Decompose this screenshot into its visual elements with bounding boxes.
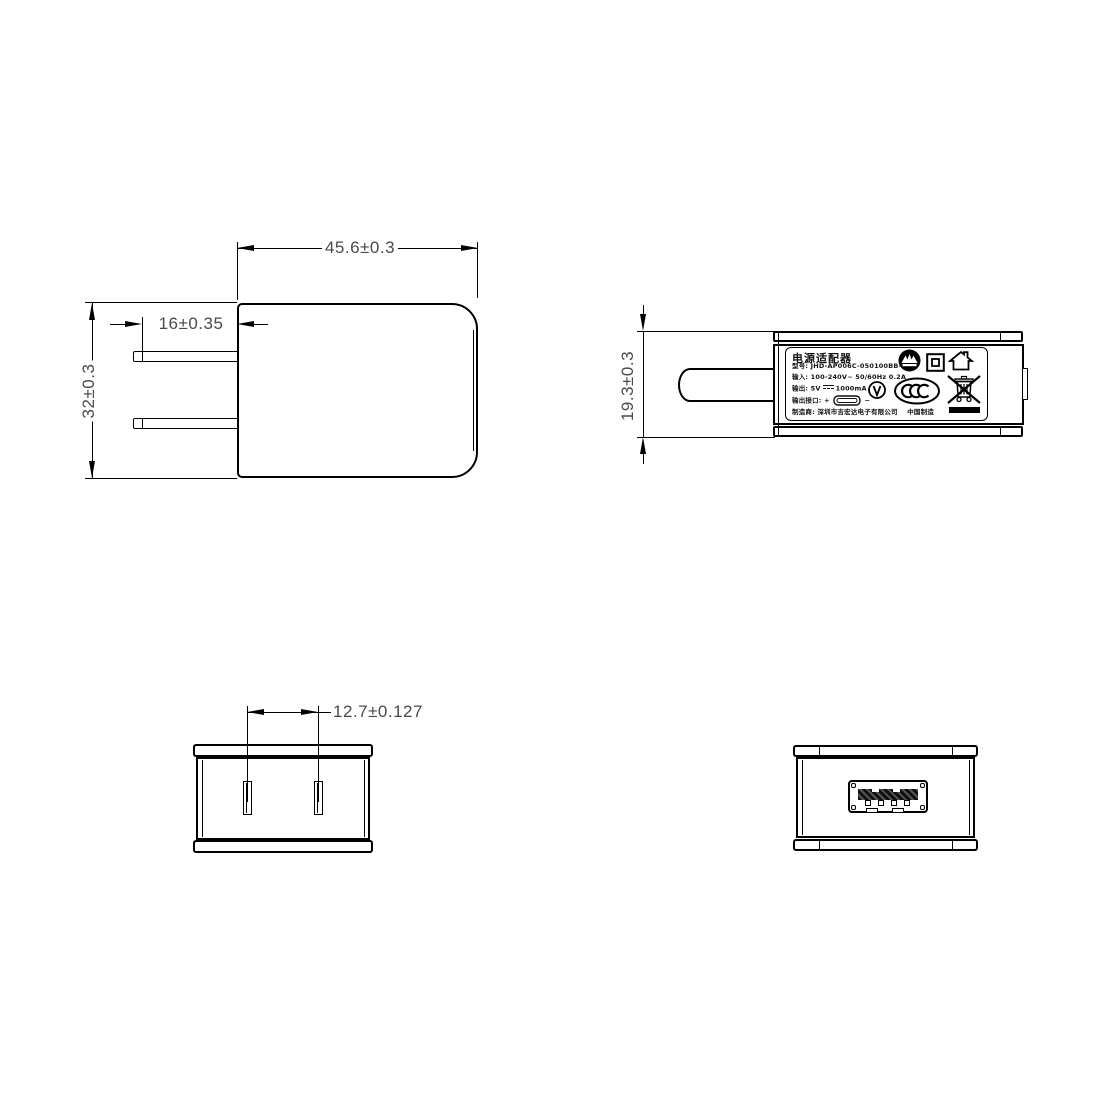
label-manufacturer: 制造商: 深圳市吉宏达电子有限公司 [792,408,898,416]
width-dim-arrow-right [461,245,478,251]
pinlen-arrow-left [125,321,142,327]
efficiency-level-v-icon [868,381,886,399]
usbface-topcap-div-right [952,746,953,756]
usbface-topcap-div-left [819,746,820,756]
pinlen-dim-text: 16±0.35 [156,314,227,334]
spacing-ext-line-right [318,706,319,802]
label-output-prefix: 输出: 5V [792,385,821,393]
width-dim-arrow-left [237,245,254,251]
plug-pin-side [678,368,775,402]
usb-contact-4 [904,800,910,806]
spacing-arrow-right [301,709,318,715]
spacing-arrow-left [247,709,264,715]
thick-tail-bottom [643,454,644,464]
adapter-body-outline [237,303,478,478]
height-ext-line-bottom [85,478,237,479]
height-dim-text: 32±0.3 [79,361,99,422]
usb-contact-1 [865,800,871,806]
thick-ext-line-bottom [637,437,775,438]
usbface-top-cap [793,745,978,757]
usb-connector-icon [833,395,861,406]
thick-arrow-bottom [640,437,646,454]
black-bar-mark [949,407,980,413]
weee-crossed-bin-icon [945,374,983,406]
usb-contact-2 [878,800,884,806]
width-dim-text: 45.6±0.3 [322,238,398,258]
side-bottom-strip [773,426,1023,437]
pin-top-step-line [142,352,143,361]
usb-tongue-notch-left [872,789,879,792]
usbface-botcap-div-left [819,840,820,850]
dc-voltage-icon [823,385,834,392]
ccc-certification-icon [893,377,941,405]
label-port-plus: + [824,397,830,405]
spacing-ext-line-left [247,706,248,802]
usb-bottom-tab-right [892,808,904,813]
pinface-top-cap [193,744,373,757]
pinlen-tail-left [110,324,126,325]
label-manufacturer-line: 制造商: 深圳市吉宏达电子有限公司 中国制造 [792,409,934,416]
usb-corner-mark-bl [851,805,856,810]
usbface-inner-line-left [802,760,803,835]
label-input-line: 输入: 100-240V~ 50/60Hz 0.2A [792,374,906,381]
height-ext-line-top [85,302,237,303]
plug-pin-bottom [133,418,238,429]
usb-corner-mark-br [920,805,925,810]
side-top-strip [773,331,1023,342]
pinface-inner-line-left [202,760,203,837]
thick-dim-line [643,331,644,437]
label-port-line: 输出接口: + − [792,395,870,406]
usb-bottom-tab-left [866,808,878,813]
pinface-main-body [196,757,370,840]
usb-tongue [858,789,918,800]
side-right-notch [1022,368,1028,400]
plug-pin-top [133,351,238,362]
indoor-use-only-icon [948,349,974,373]
width-ext-line-right [477,242,478,298]
usb-tongue-notch-right [893,789,900,792]
cqc-scalloped-mark-icon [898,349,921,372]
body-parting-line [473,330,474,451]
label-output-suffix: 1000mA [836,385,867,393]
spacing-dim-text: 12.7±0.127 [333,702,423,722]
height-dim-arrow-top [89,303,95,320]
side-left-face-line [778,331,779,437]
product-label: 电源适配器 型号: JHD-AP006C-050100BB-2 输入: 100-… [785,347,988,421]
pinlen-ext-line [142,317,143,351]
thick-arrow-top [640,314,646,331]
pinlen-tail-right [254,324,268,325]
pin-bottom-step-line [142,419,143,428]
thick-ext-line-top [637,331,775,332]
pinlen-arrow-right [237,321,254,327]
label-output-line: 输出: 5V1000mA [792,385,867,393]
usb-corner-mark-tr [920,783,925,788]
usbface-bottom-cap [793,839,978,851]
class-ii-insulation-icon [926,353,945,372]
label-model-line: 型号: JHD-AP006C-050100BB-2 [792,363,906,370]
usb-corner-mark-tl [851,783,856,788]
usb-contact-3 [891,800,897,806]
thick-dim-text: 19.3±0.3 [618,348,638,424]
width-ext-line-left [237,242,238,300]
usbface-inner-line-right [969,760,970,835]
technical-drawing-canvas: 45.6±0.3 16±0.35 32±0.3 19.3±0.3 [0,0,1100,1100]
height-dim-arrow-bottom [89,461,95,478]
pinface-inner-line-right [364,760,365,837]
side-top-strip-divider [1000,332,1001,341]
label-port-prefix: 输出接口: [792,397,822,405]
pinface-bottom-cap [193,840,373,853]
label-made-in: 中国制造 [907,408,934,416]
side-bottom-strip-divider [1000,427,1001,436]
usbface-botcap-div-right [952,840,953,850]
